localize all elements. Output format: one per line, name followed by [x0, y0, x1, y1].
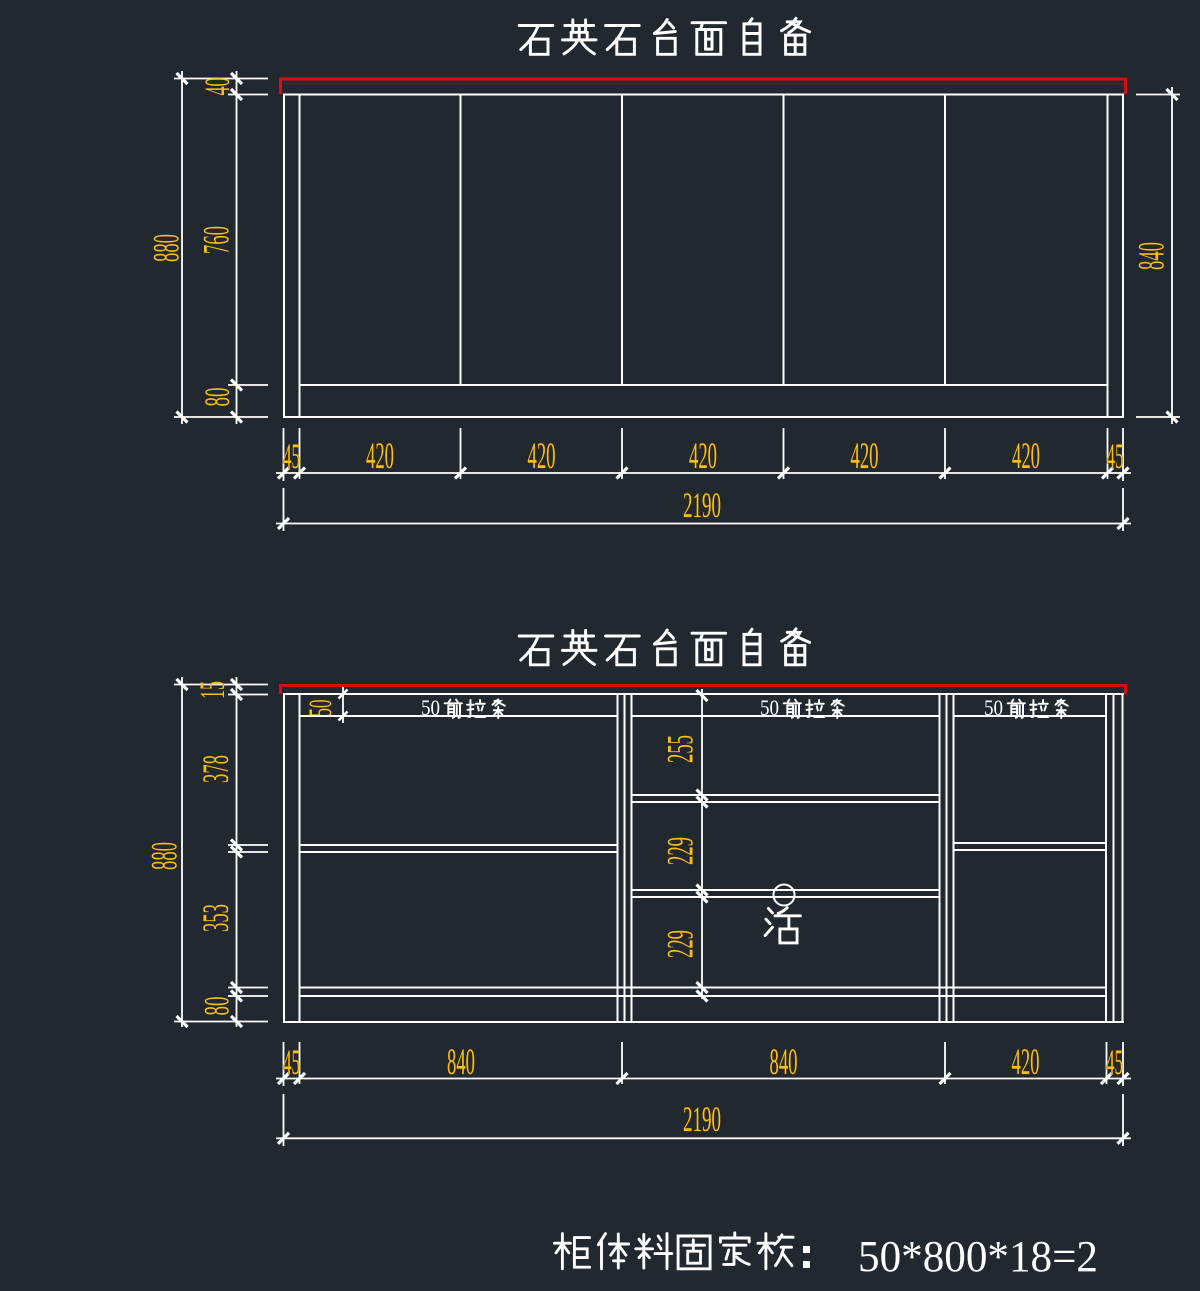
svg-text:40: 40 — [197, 78, 237, 96]
svg-text:45: 45 — [1107, 436, 1124, 476]
svg-text:420: 420 — [366, 436, 394, 477]
svg-text:80: 80 — [197, 997, 237, 1016]
svg-text:255: 255 — [661, 735, 702, 763]
svg-text:229: 229 — [661, 930, 702, 958]
svg-text:45: 45 — [283, 436, 300, 476]
svg-text:2190: 2190 — [683, 485, 721, 525]
svg-text:45: 45 — [1106, 1042, 1123, 1082]
svg-text:15: 15 — [192, 681, 232, 699]
svg-text:760: 760 — [197, 226, 238, 254]
svg-text:378: 378 — [196, 755, 237, 783]
svg-text:420: 420 — [1012, 436, 1040, 477]
svg-text:840: 840 — [1132, 242, 1173, 270]
svg-text:880: 880 — [147, 234, 188, 262]
svg-text:80: 80 — [197, 388, 237, 407]
svg-text:50: 50 — [421, 695, 440, 720]
svg-text:2190: 2190 — [683, 1099, 721, 1139]
svg-text:50: 50 — [760, 695, 779, 720]
svg-text:840: 840 — [447, 1042, 475, 1083]
svg-text:420: 420 — [689, 436, 717, 477]
svg-text:50: 50 — [303, 700, 339, 717]
svg-text:420: 420 — [528, 436, 556, 477]
svg-text:420: 420 — [1012, 1042, 1040, 1083]
svg-text:229: 229 — [661, 837, 702, 865]
svg-text:50*800*18=2: 50*800*18=2 — [858, 1232, 1098, 1281]
svg-text:840: 840 — [770, 1042, 798, 1083]
svg-text:353: 353 — [196, 904, 237, 932]
svg-text:420: 420 — [851, 436, 879, 477]
svg-text:880: 880 — [145, 842, 186, 870]
svg-text:45: 45 — [283, 1042, 300, 1082]
svg-text:50: 50 — [984, 695, 1003, 720]
